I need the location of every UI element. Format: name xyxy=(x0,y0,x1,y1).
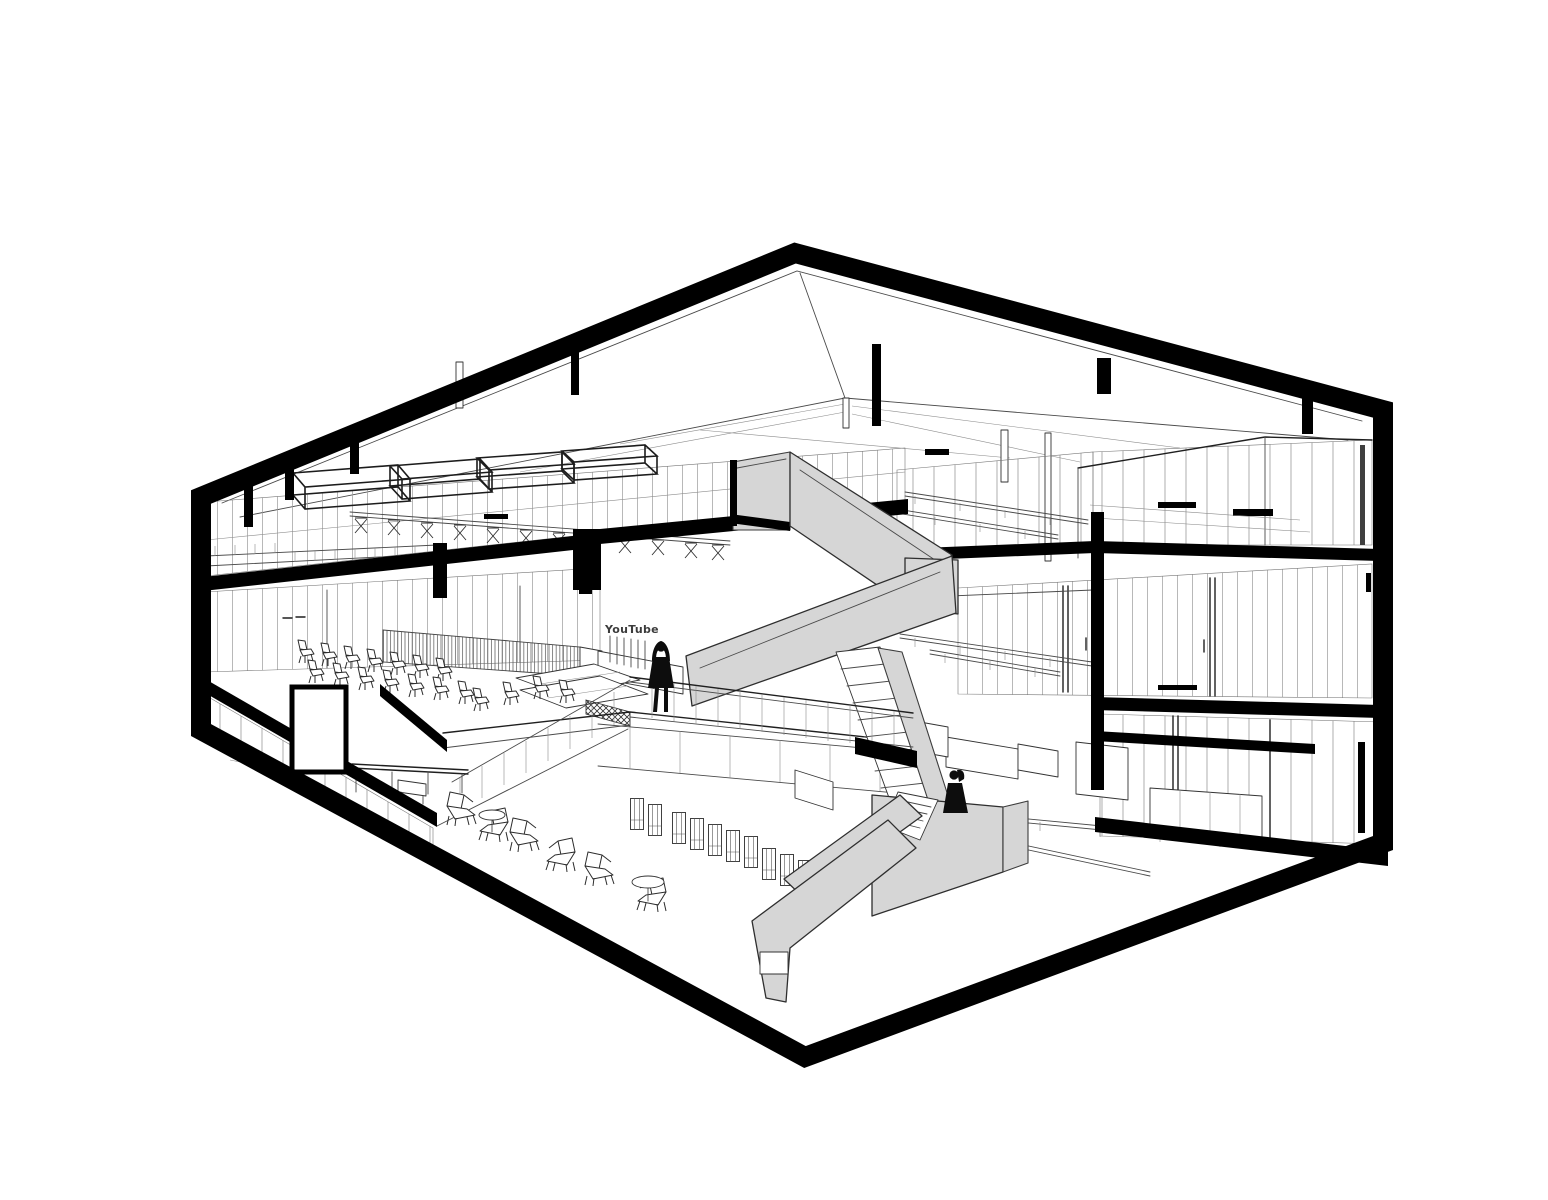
stair-newel-base xyxy=(760,952,788,974)
ceiling-column xyxy=(843,398,849,428)
room-corner-post xyxy=(1360,445,1365,545)
mezzanine-edge xyxy=(437,680,913,826)
ground-floor-door xyxy=(292,687,346,772)
sectional-perspective-drawing: YouTube xyxy=(0,0,1548,1200)
third-floor-right xyxy=(878,437,1372,558)
door-header-dash xyxy=(1158,685,1197,690)
logo-sign-text: YouTube xyxy=(604,623,659,636)
white-box xyxy=(795,770,833,810)
glass-wall xyxy=(958,564,1372,698)
drawing-canvas: YouTube xyxy=(0,0,1548,1200)
person-on-landing xyxy=(943,770,968,813)
desk-section-dash xyxy=(1233,509,1273,516)
desk-section-dash xyxy=(925,449,949,455)
cut-wall-bar xyxy=(1091,512,1104,790)
stair-flight-middle xyxy=(686,556,956,706)
desk-section-dash xyxy=(484,514,508,519)
second-floor-right xyxy=(900,564,1372,698)
desk-section-dash xyxy=(1158,502,1196,508)
